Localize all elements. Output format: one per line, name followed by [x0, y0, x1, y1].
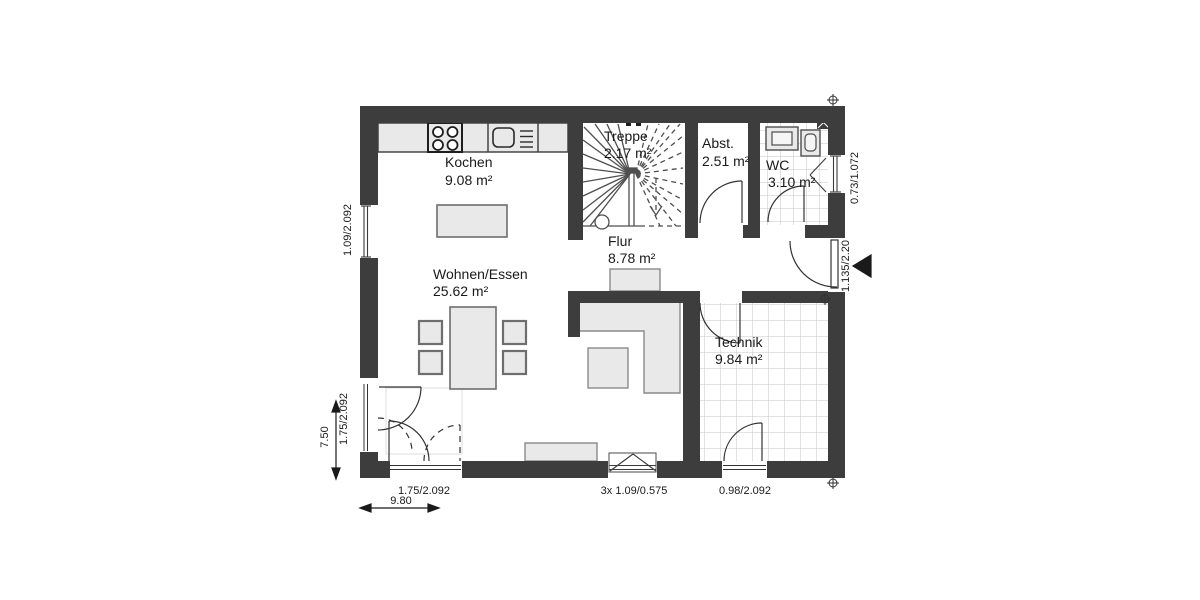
room-area-flur: 8.78 m²: [608, 250, 656, 266]
chair: [419, 351, 442, 374]
hall-sideboard: [610, 269, 660, 291]
wall-right-upper: [828, 106, 845, 155]
wall-bottom-a: [360, 461, 390, 478]
wall-bottom-b: [462, 461, 608, 478]
toilet-icon: [801, 130, 820, 156]
washbasin-icon: [766, 127, 798, 150]
wall-technik-west: [683, 291, 700, 461]
dim-left-window: 1.09/2.092: [342, 204, 354, 256]
dim-technik-door: 0.98/2.092: [719, 485, 771, 497]
door-terrace-bottom: [389, 421, 461, 470]
window-left-upper: [361, 206, 371, 257]
wall-top: [360, 106, 845, 123]
room-area-wc: 3.10 m²: [768, 174, 816, 190]
room-label-wohnen: Wohnen/Essen: [433, 266, 528, 282]
room-label-flur: Flur: [608, 233, 632, 249]
dim-left-door: 1.75/2.092: [338, 393, 350, 445]
dim-bottom-width: 9.80: [390, 495, 411, 507]
wall-living-stub: [568, 291, 580, 337]
dining-table-set: [419, 307, 526, 389]
cooktop-icon: [428, 123, 462, 152]
lowboard: [525, 443, 597, 461]
room-label-technik: Technik: [715, 334, 763, 350]
wall-technik-north: [742, 291, 828, 303]
entrance-arrow-icon: [853, 255, 871, 277]
room-area-kochen: 9.08 m²: [445, 172, 493, 188]
tilt-symbol-line: [633, 454, 656, 471]
floor-plan-drawing: Kochen 9.08 m² Treppe 2.17 m² Abst. 2.51…: [0, 0, 1200, 600]
wall-right-lower: [828, 292, 845, 478]
dim-wc-window: 0.73/1.072: [849, 152, 861, 204]
stair-newel-post: [595, 215, 609, 229]
dim-left-height: 7.50: [319, 426, 331, 447]
wall-bottom-c: [657, 461, 722, 478]
wall-left-middle: [360, 258, 378, 378]
tilt-symbol-line: [610, 454, 633, 471]
door-abst: [700, 181, 742, 223]
side-table: [588, 348, 628, 388]
floor-plan: Kochen 9.08 m² Treppe 2.17 m² Abst. 2.51…: [0, 0, 1200, 600]
kitchen-counter: [378, 123, 568, 152]
wall-living-hall: [568, 291, 683, 303]
window-bottom-triple: [609, 453, 656, 472]
chair: [503, 351, 526, 374]
room-area-abst: 2.51 m²: [702, 153, 750, 169]
door-entrance: [790, 240, 838, 288]
wall-right-pier: [828, 193, 845, 238]
dim-entrance-door: 1.135/2.20: [840, 240, 852, 292]
survey-marker-icon: [827, 94, 839, 106]
chair: [503, 321, 526, 344]
door-terrace-left: [364, 384, 421, 452]
wall-hall-row-b: [805, 225, 828, 238]
room-area-treppe: 2.17 m²: [604, 145, 652, 161]
room-label-abst: Abst.: [702, 135, 734, 151]
kitchen-island: [437, 205, 507, 237]
wall-hall-row-a: [743, 225, 760, 238]
wall-stair-west: [568, 123, 583, 240]
chair: [419, 321, 442, 344]
dining-table: [450, 307, 496, 389]
technik-floor-tiles: [700, 303, 828, 461]
room-label-kochen: Kochen: [445, 154, 492, 170]
survey-marker-icon: [827, 477, 839, 489]
room-label-treppe: Treppe: [604, 128, 648, 144]
wall-stair-east: [685, 123, 698, 238]
wall-left-upper: [360, 106, 378, 205]
finish-line: [386, 388, 462, 454]
wall-abst-wc: [748, 123, 760, 238]
staircase: [583, 107, 683, 229]
dim-triple-window: 3x 1.09/0.575: [601, 485, 668, 497]
room-area-technik: 9.84 m²: [715, 351, 763, 367]
room-area-wohnen: 25.62 m²: [433, 283, 489, 299]
room-label-wc: WC: [766, 157, 789, 173]
